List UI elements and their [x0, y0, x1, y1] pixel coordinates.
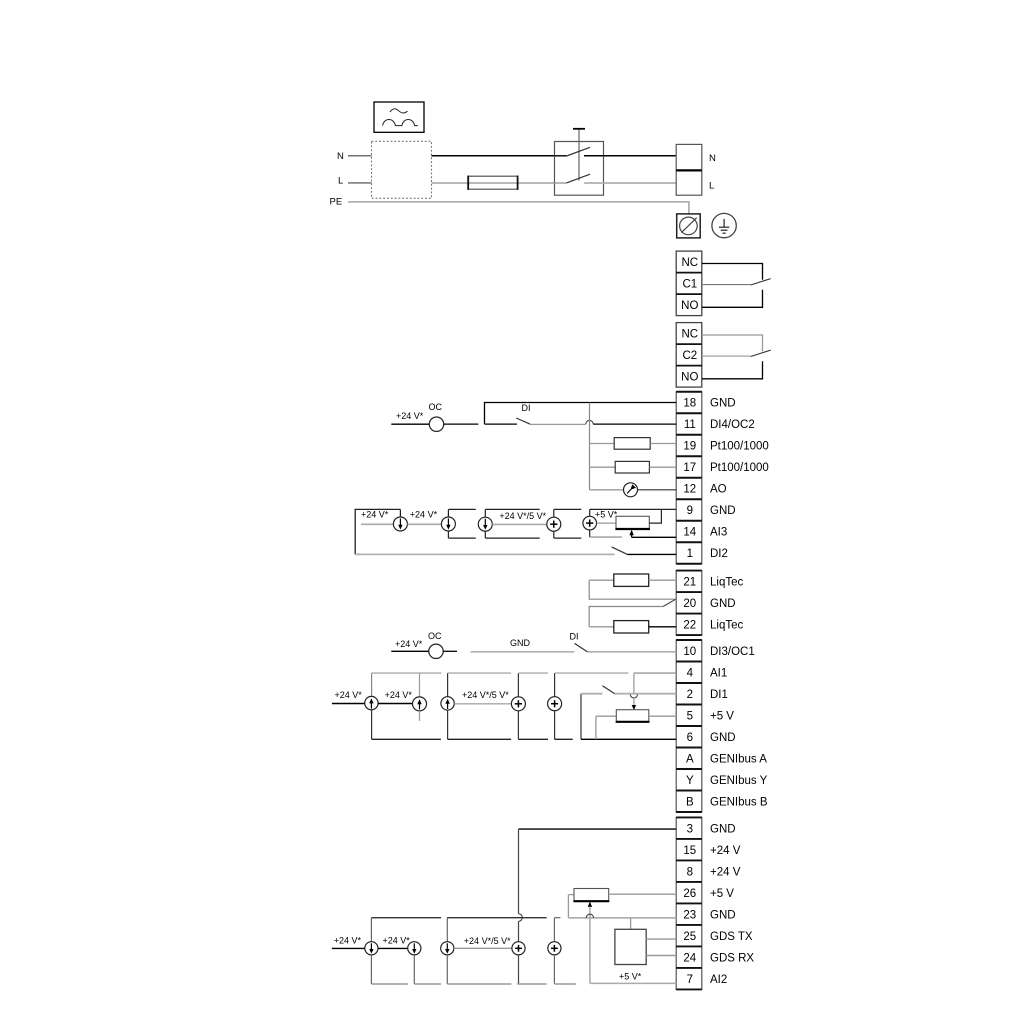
svg-text:GND: GND — [710, 732, 736, 744]
svg-text:22: 22 — [683, 619, 696, 631]
svg-text:GND: GND — [710, 598, 736, 610]
svg-text:26: 26 — [683, 888, 696, 900]
svg-text:GND: GND — [710, 909, 736, 921]
svg-text:+24 V*: +24 V* — [410, 509, 438, 519]
svg-text:24: 24 — [683, 952, 696, 964]
svg-text:+24 V*: +24 V* — [385, 690, 413, 700]
svg-text:20: 20 — [683, 598, 696, 610]
svg-text:AI2: AI2 — [710, 974, 727, 986]
svg-text:DI: DI — [522, 403, 531, 413]
svg-text:GND: GND — [710, 823, 736, 835]
svg-text:+5 V*: +5 V* — [595, 510, 618, 520]
svg-text:DI3/OC1: DI3/OC1 — [710, 646, 755, 658]
svg-text:+5 V: +5 V — [710, 888, 734, 900]
svg-text:DI4/OC2: DI4/OC2 — [710, 419, 755, 431]
svg-text:1: 1 — [687, 548, 693, 560]
svg-text:Y: Y — [686, 775, 694, 787]
svg-text:+5 V: +5 V — [710, 710, 734, 722]
svg-text:L: L — [709, 180, 714, 191]
svg-text:L: L — [338, 176, 343, 187]
svg-text:+24 V*/5 V*: +24 V*/5 V* — [499, 511, 546, 521]
svg-text:GENIbus B: GENIbus B — [710, 796, 768, 808]
svg-text:A: A — [686, 753, 694, 765]
svg-text:+24 V*/5 V*: +24 V*/5 V* — [464, 936, 511, 946]
svg-text:GND: GND — [510, 638, 531, 648]
svg-text:7: 7 — [687, 974, 693, 986]
svg-text:GND: GND — [710, 505, 736, 517]
svg-text:OC: OC — [428, 631, 442, 641]
svg-text:Pt100/1000: Pt100/1000 — [710, 462, 769, 474]
svg-text:+24 V*: +24 V* — [383, 936, 411, 946]
svg-text:4: 4 — [687, 667, 694, 679]
svg-text:12: 12 — [683, 484, 696, 496]
svg-text:DI: DI — [570, 632, 579, 642]
svg-text:6: 6 — [687, 732, 693, 744]
svg-text:AI3: AI3 — [710, 527, 727, 539]
svg-text:N: N — [337, 151, 344, 162]
svg-text:2: 2 — [687, 689, 693, 701]
svg-text:17: 17 — [683, 462, 696, 474]
svg-text:19: 19 — [683, 441, 696, 453]
svg-text:C1: C1 — [682, 279, 697, 291]
svg-text:GDS RX: GDS RX — [710, 952, 754, 964]
svg-text:+24 V*: +24 V* — [335, 690, 363, 700]
svg-text:18: 18 — [683, 398, 696, 410]
svg-text:GENIbus Y: GENIbus Y — [710, 775, 768, 787]
svg-text:NC: NC — [681, 257, 698, 269]
svg-text:DI1: DI1 — [710, 689, 728, 701]
svg-text:C2: C2 — [682, 350, 697, 362]
svg-text:NC: NC — [681, 329, 698, 341]
svg-text:9: 9 — [687, 505, 693, 517]
svg-text:+24 V*: +24 V* — [396, 411, 424, 421]
svg-text:GDS TX: GDS TX — [710, 931, 753, 943]
svg-text:AO: AO — [710, 484, 727, 496]
svg-text:Pt100/1000: Pt100/1000 — [710, 441, 769, 453]
svg-text:25: 25 — [683, 931, 696, 943]
svg-text:+24 V: +24 V — [710, 845, 741, 857]
svg-text:3: 3 — [687, 823, 693, 835]
svg-text:DI2: DI2 — [710, 548, 728, 560]
svg-text:21: 21 — [683, 576, 696, 588]
svg-text:AI1: AI1 — [710, 667, 727, 679]
svg-text:LiqTec: LiqTec — [710, 576, 743, 588]
svg-text:23: 23 — [683, 909, 696, 921]
svg-text:LiqTec: LiqTec — [710, 619, 743, 631]
svg-text:+24 V*: +24 V* — [334, 936, 362, 946]
svg-text:+24 V: +24 V — [710, 866, 741, 878]
svg-text:10: 10 — [683, 646, 696, 658]
svg-text:11: 11 — [684, 419, 696, 431]
svg-text:+24 V*: +24 V* — [361, 510, 389, 520]
svg-text:5: 5 — [687, 710, 693, 722]
svg-text:NO: NO — [681, 372, 698, 384]
svg-text:GENIbus A: GENIbus A — [710, 753, 767, 765]
svg-text:+24 V*/5 V*: +24 V*/5 V* — [462, 690, 509, 700]
svg-text:GND: GND — [710, 398, 736, 410]
svg-text:PE: PE — [330, 197, 343, 208]
svg-text:+24 V*: +24 V* — [395, 639, 423, 649]
svg-text:+5 V*: +5 V* — [619, 972, 642, 982]
svg-text:B: B — [686, 796, 694, 808]
svg-text:OC: OC — [429, 402, 443, 412]
svg-text:8: 8 — [687, 866, 693, 878]
svg-text:14: 14 — [683, 527, 696, 539]
svg-text:N: N — [709, 153, 716, 164]
svg-text:15: 15 — [683, 845, 696, 857]
svg-text:NO: NO — [681, 300, 698, 312]
